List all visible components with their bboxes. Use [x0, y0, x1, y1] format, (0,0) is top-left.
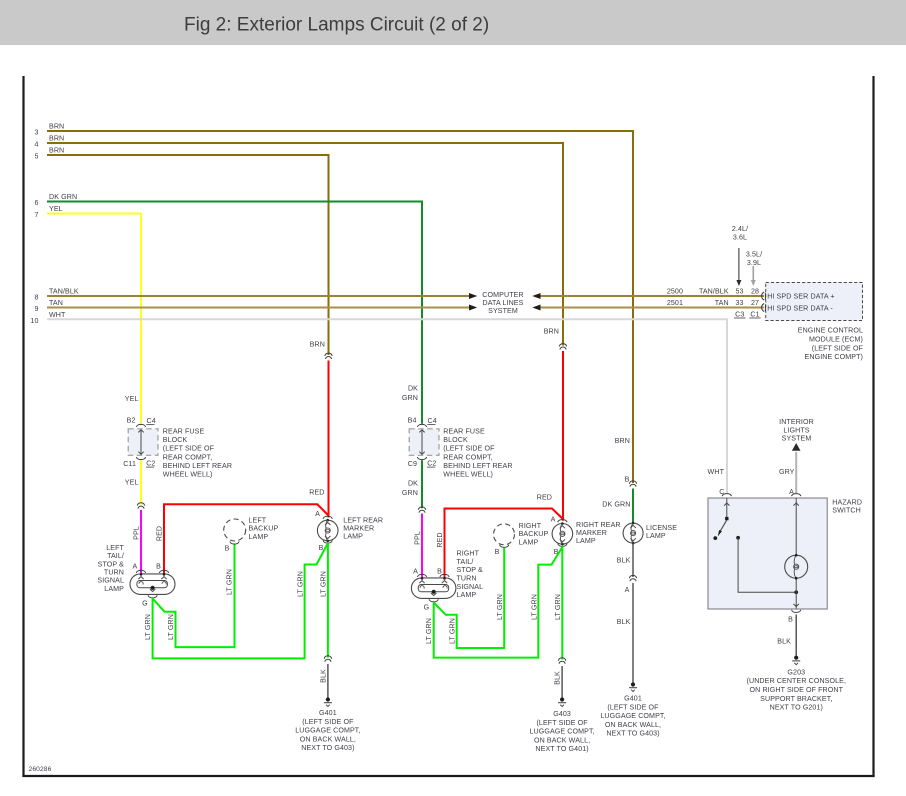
svg-text:REAR COMPT,: REAR COMPT,: [443, 453, 493, 461]
svg-text:LT GRN: LT GRN: [226, 569, 234, 595]
svg-text:LT GRN: LT GRN: [320, 571, 328, 597]
svg-text:LUGGAGE COMPT,: LUGGAGE COMPT,: [600, 712, 665, 720]
svg-text:SUPPORT BRACKET,: SUPPORT BRACKET,: [760, 695, 832, 703]
svg-text:COMPUTER: COMPUTER: [482, 291, 523, 299]
svg-text:LAMP: LAMP: [249, 533, 269, 541]
svg-text:ON BACK WALL,: ON BACK WALL,: [534, 736, 590, 744]
svg-text:4: 4: [34, 141, 38, 149]
svg-text:SWITCH: SWITCH: [832, 506, 861, 514]
svg-text:LT GRN: LT GRN: [449, 618, 457, 644]
svg-text:NEXT TO G403): NEXT TO G403): [606, 730, 659, 738]
svg-text:B: B: [225, 545, 230, 553]
svg-text:LAMP: LAMP: [646, 532, 666, 540]
svg-text:3.9L: 3.9L: [747, 259, 761, 267]
svg-text:B4: B4: [408, 417, 417, 425]
svg-text:DK: DK: [408, 385, 418, 393]
svg-text:WHT: WHT: [49, 311, 66, 319]
svg-text:BACKUP: BACKUP: [519, 530, 549, 538]
svg-text:TAN: TAN: [715, 299, 729, 307]
svg-text:B: B: [156, 563, 161, 571]
svg-text:DK GRN: DK GRN: [602, 501, 630, 509]
svg-text:YEL: YEL: [125, 395, 139, 403]
svg-text:MARKER: MARKER: [343, 524, 374, 532]
svg-text:REAR COMPT,: REAR COMPT,: [163, 453, 213, 461]
svg-text:ENGINE COMPT): ENGINE COMPT): [805, 353, 863, 361]
svg-text:2501: 2501: [667, 299, 683, 307]
svg-text:SIGNAL: SIGNAL: [457, 583, 484, 591]
svg-text:HI SPD SER DATA +: HI SPD SER DATA +: [767, 293, 834, 301]
svg-text:STOP &: STOP &: [457, 566, 484, 574]
svg-text:BLK: BLK: [617, 557, 631, 565]
svg-text:GRY: GRY: [779, 468, 795, 476]
svg-text:MARKER: MARKER: [576, 529, 607, 537]
svg-text:DK: DK: [408, 480, 418, 488]
svg-text:(LEFT SIDE OF: (LEFT SIDE OF: [302, 718, 354, 726]
svg-text:RED: RED: [537, 494, 552, 502]
svg-text:ON BACK WALL,: ON BACK WALL,: [605, 721, 661, 729]
svg-text:WHEEL WELL): WHEEL WELL): [163, 471, 213, 479]
svg-text:WHEEL WELL): WHEEL WELL): [443, 471, 493, 479]
svg-text:BLOCK: BLOCK: [443, 436, 468, 444]
svg-text:SIGNAL: SIGNAL: [97, 577, 124, 585]
svg-text:LUGGAGE COMPT,: LUGGAGE COMPT,: [295, 727, 360, 735]
svg-text:7: 7: [34, 211, 38, 219]
svg-text:LAMP: LAMP: [343, 533, 363, 541]
svg-text:REAR FUSE: REAR FUSE: [443, 428, 485, 436]
svg-text:LT GRN: LT GRN: [531, 594, 539, 620]
svg-text:33: 33: [735, 299, 743, 307]
svg-text:REAR FUSE: REAR FUSE: [163, 428, 205, 436]
svg-text:GRN: GRN: [402, 394, 418, 402]
svg-text:LT GRN: LT GRN: [167, 614, 175, 640]
svg-text:TAN/BLK: TAN/BLK: [699, 288, 729, 296]
svg-text:G: G: [424, 603, 430, 611]
svg-text:BRN: BRN: [49, 147, 64, 155]
svg-text:TURN: TURN: [104, 569, 124, 577]
svg-text:LT GRN: LT GRN: [496, 594, 504, 620]
svg-text:DK GRN: DK GRN: [49, 193, 77, 201]
svg-text:A: A: [625, 586, 630, 594]
svg-text:RIGHT REAR: RIGHT REAR: [576, 521, 621, 529]
svg-text:(LEFT SIDE OF: (LEFT SIDE OF: [812, 344, 864, 352]
svg-text:YEL: YEL: [125, 478, 139, 486]
svg-text:C2: C2: [146, 460, 155, 468]
svg-text:G203: G203: [787, 669, 805, 677]
svg-text:A: A: [413, 568, 418, 576]
svg-text:LAMP: LAMP: [519, 539, 539, 547]
svg-text:HAZARD: HAZARD: [832, 498, 862, 506]
svg-text:WHT: WHT: [708, 468, 725, 476]
svg-text:C9: C9: [408, 460, 417, 468]
svg-text:G401: G401: [624, 695, 642, 703]
svg-text:BEHIND LEFT REAR: BEHIND LEFT REAR: [443, 462, 512, 470]
svg-text:RIGHT: RIGHT: [519, 522, 542, 530]
svg-text:BLK: BLK: [320, 669, 328, 683]
svg-text:B: B: [788, 616, 793, 624]
svg-text:B: B: [625, 476, 630, 484]
svg-text:STOP &: STOP &: [98, 560, 125, 568]
svg-text:9: 9: [34, 305, 38, 313]
svg-text:A: A: [551, 516, 556, 524]
svg-text:A: A: [789, 488, 794, 496]
svg-text:RED: RED: [436, 532, 444, 547]
svg-text:LT GRN: LT GRN: [296, 571, 304, 597]
svg-text:LIGHTS: LIGHTS: [783, 426, 809, 434]
svg-text:3.6L: 3.6L: [733, 233, 747, 241]
svg-text:LEFT: LEFT: [106, 544, 124, 552]
svg-text:BRN: BRN: [310, 341, 325, 349]
svg-text:LAMP: LAMP: [104, 585, 124, 593]
svg-text:RIGHT: RIGHT: [457, 550, 480, 558]
svg-text:PPL: PPL: [132, 526, 140, 540]
svg-text:NEXT TO G201): NEXT TO G201): [770, 704, 823, 712]
svg-text:SYSTEM: SYSTEM: [488, 307, 518, 315]
svg-text:(LEFT SIDE OF: (LEFT SIDE OF: [443, 445, 495, 453]
svg-text:(LEFT SIDE OF: (LEFT SIDE OF: [163, 445, 215, 453]
svg-text:B2: B2: [127, 417, 136, 425]
svg-text:PPL: PPL: [413, 531, 421, 545]
svg-text:8: 8: [34, 294, 38, 302]
svg-text:LT GRN: LT GRN: [144, 614, 152, 640]
svg-text:BLK: BLK: [617, 618, 631, 626]
svg-text:G401: G401: [319, 709, 337, 717]
svg-text:LICENSE: LICENSE: [646, 524, 677, 532]
svg-text:28: 28: [751, 288, 759, 296]
svg-text:2500: 2500: [667, 288, 683, 296]
svg-text:LUGGAGE COMPT,: LUGGAGE COMPT,: [529, 728, 594, 736]
svg-text:(UNDER CENTER CONSOLE,: (UNDER CENTER CONSOLE,: [747, 677, 847, 685]
svg-text:TAN: TAN: [49, 299, 63, 307]
svg-text:C4: C4: [147, 417, 156, 425]
svg-text:LEFT REAR: LEFT REAR: [343, 516, 383, 524]
svg-text:C1: C1: [750, 310, 759, 318]
svg-text:DATA LINES: DATA LINES: [483, 299, 524, 307]
svg-text:C2: C2: [427, 460, 436, 468]
svg-text:TURN: TURN: [457, 575, 477, 583]
svg-text:NEXT TO G403): NEXT TO G403): [301, 744, 354, 752]
svg-text:B: B: [437, 568, 442, 576]
svg-text:TAN/BLK: TAN/BLK: [49, 288, 79, 296]
svg-text:LT GRN: LT GRN: [554, 594, 562, 620]
svg-text:A: A: [132, 563, 137, 571]
svg-text:260286: 260286: [29, 766, 52, 773]
svg-text:BRN: BRN: [49, 123, 64, 131]
svg-text:C4: C4: [428, 417, 437, 425]
svg-text:ON RIGHT SIDE OF FRONT: ON RIGHT SIDE OF FRONT: [750, 686, 844, 694]
svg-text:LT GRN: LT GRN: [425, 618, 433, 644]
svg-text:27: 27: [751, 299, 759, 307]
svg-text:2.4L/: 2.4L/: [732, 225, 748, 233]
svg-text:SYSTEM: SYSTEM: [782, 435, 812, 443]
svg-text:BRN: BRN: [544, 328, 559, 336]
svg-text:BLK: BLK: [777, 638, 791, 646]
svg-text:C11: C11: [123, 460, 136, 468]
svg-text:(LEFT SIDE OF: (LEFT SIDE OF: [607, 703, 659, 711]
svg-text:G: G: [142, 599, 148, 607]
svg-text:BLOCK: BLOCK: [163, 436, 188, 444]
svg-text:TAIL/: TAIL/: [107, 552, 124, 560]
svg-text:YEL: YEL: [49, 205, 63, 213]
svg-text:ENGINE CONTROL: ENGINE CONTROL: [798, 327, 863, 335]
svg-text:53: 53: [735, 288, 743, 296]
svg-text:BRN: BRN: [615, 437, 630, 445]
svg-text:LAMP: LAMP: [457, 591, 477, 599]
svg-text:5: 5: [34, 153, 38, 161]
svg-text:INTERIOR: INTERIOR: [779, 418, 814, 426]
svg-text:HI SPD SER DATA -: HI SPD SER DATA -: [767, 305, 833, 313]
svg-text:3: 3: [34, 129, 38, 137]
svg-text:Fig 2: Exterior Lamps Circuit: Fig 2: Exterior Lamps Circuit (2 of 2): [184, 15, 489, 36]
svg-text:RED: RED: [309, 489, 324, 497]
svg-text:TAIL/: TAIL/: [457, 558, 474, 566]
svg-text:BEHIND LEFT REAR: BEHIND LEFT REAR: [163, 462, 232, 470]
svg-text:(LEFT SIDE OF: (LEFT SIDE OF: [536, 719, 588, 727]
svg-text:3.5L/: 3.5L/: [746, 251, 762, 259]
svg-text:6: 6: [34, 199, 38, 207]
svg-text:C3: C3: [735, 310, 744, 318]
svg-text:MODULE (ECM): MODULE (ECM): [809, 335, 863, 343]
svg-text:B: B: [495, 548, 500, 556]
svg-text:GRN: GRN: [402, 489, 418, 497]
svg-text:RED: RED: [156, 526, 164, 541]
svg-text:BLK: BLK: [554, 671, 562, 685]
svg-text:10: 10: [30, 317, 38, 325]
svg-text:BACKUP: BACKUP: [249, 525, 279, 533]
svg-text:G403: G403: [553, 710, 571, 718]
svg-text:A: A: [315, 510, 320, 518]
svg-text:NEXT TO G401): NEXT TO G401): [535, 745, 588, 753]
svg-text:LEFT: LEFT: [249, 516, 267, 524]
svg-text:LAMP: LAMP: [576, 537, 596, 545]
svg-text:BRN: BRN: [49, 135, 64, 143]
svg-text:ON BACK WALL,: ON BACK WALL,: [300, 735, 356, 743]
